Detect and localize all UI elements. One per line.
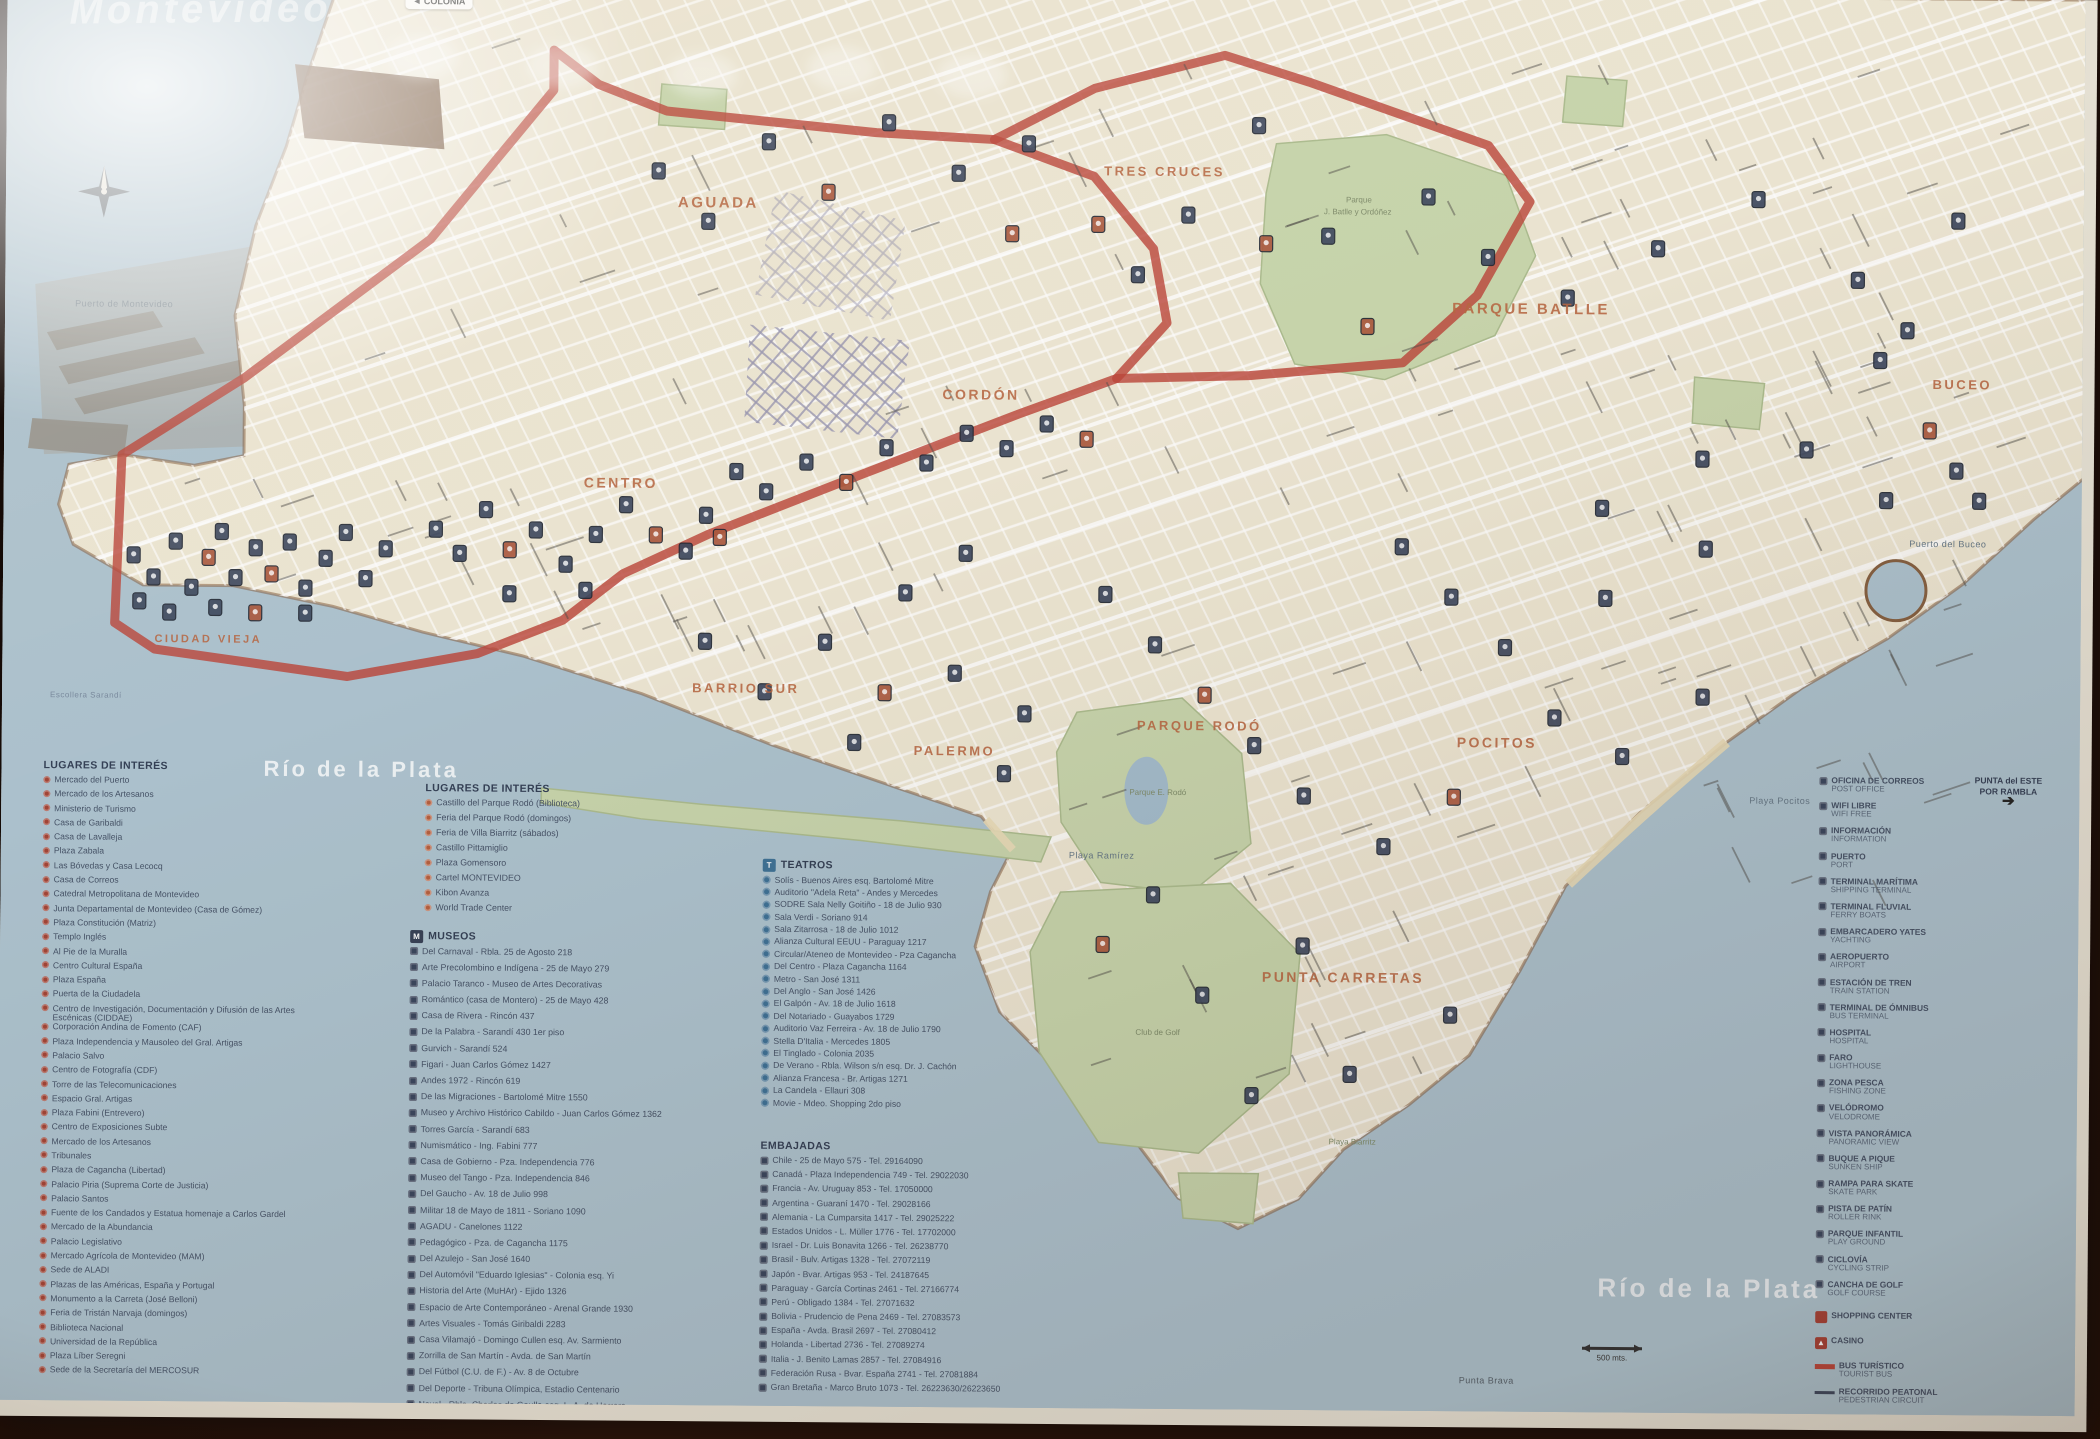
poi-marker <box>822 184 835 200</box>
legend-bullet-icon <box>1818 903 1826 911</box>
poi-marker <box>147 569 160 585</box>
poi-marker-glyph <box>1026 140 1031 145</box>
legend-bullet-icon <box>1817 1129 1825 1137</box>
legend-bullet-icon <box>762 975 770 983</box>
service-item: VELÓDROMOVELODROME <box>1817 1103 2037 1130</box>
poi-marker-glyph <box>363 575 368 580</box>
poi-marker <box>265 566 278 582</box>
theaters-icon: T <box>763 858 776 871</box>
poi-marker-glyph <box>343 529 348 534</box>
poi-marker <box>283 534 296 550</box>
poi-marker-glyph <box>303 610 308 615</box>
poi-marker-glyph <box>323 555 328 560</box>
poi-marker <box>1950 463 1963 479</box>
legend-title: EMBAJADAS <box>761 1140 1091 1155</box>
poi-marker <box>453 545 466 561</box>
poi-marker <box>1901 323 1914 339</box>
theater-item: Movie - Mdeo. Shopping 2do piso <box>761 1098 1091 1113</box>
poi-marker-glyph <box>1426 193 1431 198</box>
legend-bullet-icon <box>42 890 49 897</box>
poi-marker-glyph <box>563 561 568 566</box>
poi-marker-glyph <box>656 167 661 172</box>
poi-marker-glyph <box>1700 694 1705 699</box>
poi-marker-glyph <box>1977 498 1982 503</box>
legend-bullet-icon <box>759 1341 767 1349</box>
poi-marker-glyph <box>1905 327 1910 332</box>
legend-bullet-icon <box>42 990 49 997</box>
poi-marker-glyph <box>844 479 849 484</box>
service-item: CANCHA DE GOLFGOLF COURSE <box>1815 1280 2035 1307</box>
poi-marker <box>299 580 312 596</box>
legend-bullet-icon <box>760 1213 768 1221</box>
park-label: Playa Biarritz <box>1329 1137 1376 1146</box>
legend-bullet-icon <box>425 844 432 851</box>
legend-title: LUGARES DE INTERÉS <box>43 759 335 773</box>
poi-marker <box>1447 789 1460 805</box>
legend-bullet-icon <box>406 1400 414 1408</box>
poi-marker <box>163 604 176 620</box>
poi-marker-glyph <box>1603 595 1608 600</box>
poi-marker-glyph <box>826 189 831 194</box>
water-label: Puerto del Buceo <box>1909 539 1986 550</box>
legend-bullet-icon <box>39 1295 46 1302</box>
poi-marker-glyph <box>1381 843 1386 848</box>
legend-bullet-icon <box>1818 1003 1826 1011</box>
poi-marker-glyph <box>884 444 889 449</box>
legend-bullet-icon <box>1819 827 1827 835</box>
legend-bullet-icon <box>40 1223 47 1230</box>
legend-bullet-icon <box>1819 802 1827 810</box>
legend-bullet-icon <box>39 1323 46 1330</box>
poi-marker <box>1851 272 1864 288</box>
poi-marker-glyph <box>1399 543 1404 548</box>
poi-marker-glyph <box>167 608 172 613</box>
map-paper: 500 mts. AGUADATRES CRUCESPARQUE BATLLEC… <box>0 0 2098 1432</box>
legend-bullet-icon <box>425 799 432 806</box>
legend-bullet-icon <box>43 847 50 854</box>
legend-bullet-icon <box>43 819 50 826</box>
poi-marker-glyph <box>1956 218 1961 223</box>
poi-marker <box>1196 987 1209 1003</box>
poi-marker-glyph <box>253 544 258 549</box>
poi-marker <box>127 547 140 563</box>
service-item: INFORMACIÓNINFORMATION <box>1819 826 2039 853</box>
legend-bullet-icon <box>762 913 770 921</box>
poi-marker-glyph <box>1447 1012 1452 1017</box>
legend-bullet-icon <box>40 1152 47 1159</box>
poi-marker-glyph <box>303 585 308 590</box>
legend-bullet-icon <box>1817 1079 1825 1087</box>
poi-marker <box>1699 541 1712 557</box>
legend-bullet-icon <box>1818 953 1826 961</box>
service-item: CICLOVÍACYCLING STRIP <box>1816 1255 2036 1282</box>
poi-marker-glyph <box>1485 254 1490 259</box>
poi-marker <box>1146 887 1159 903</box>
legend-bullet-icon <box>1817 1054 1825 1062</box>
legend-theaters: T TEATROS Solís - Buenos Aires esq. Bart… <box>761 858 1093 1114</box>
poi-marker <box>1148 637 1161 653</box>
legend-places-1: LUGARES DE INTERÉS Mercado del PuertoMer… <box>39 759 336 1382</box>
poi-marker <box>959 545 972 561</box>
legend-bullet-icon <box>41 1109 48 1116</box>
service-special-item: BUS TURÍSTICOTOURIST BUS <box>1815 1361 2035 1388</box>
poi-marker-glyph <box>533 526 538 531</box>
poi-marker <box>1092 216 1105 232</box>
poi-marker <box>1361 318 1374 334</box>
embassy-item: Gran Bretaña - Marco Bruto 1073 - Tel. 2… <box>759 1383 1089 1400</box>
poi-marker <box>1080 431 1093 447</box>
water-label: Escollera Sarandí <box>50 690 122 700</box>
legend-bullet-icon <box>425 889 432 896</box>
legend-bullet-icon <box>761 1062 769 1070</box>
district-label: POCITOS <box>1457 734 1537 751</box>
legend-bullet-icon <box>1819 852 1827 860</box>
map-photo: { "map": { "watermark": "Montevideo", "c… <box>0 0 2100 1439</box>
poi-marker-glyph <box>1010 230 1015 235</box>
poi-marker <box>840 474 853 490</box>
poi-marker-glyph <box>717 534 722 539</box>
poi-marker <box>699 507 712 523</box>
legend-bullet-icon <box>410 996 418 1004</box>
poi-marker-glyph <box>702 638 707 643</box>
legend-bullet-icon <box>409 1060 417 1068</box>
logo-glare <box>937 53 1007 98</box>
poi-marker <box>899 585 912 601</box>
poi-marker-glyph <box>131 551 136 556</box>
legend-places-2: LUGARES DE INTERÉS Castillo del Parque R… <box>424 782 725 920</box>
legend-bullet-icon <box>761 1086 769 1094</box>
district-label: AGUADA <box>678 194 759 212</box>
legend-bullet-icon <box>1817 1104 1825 1112</box>
service-item: RAMPA PARA SKATESKATE PARK <box>1816 1179 2036 1206</box>
poi-marker-glyph <box>1152 641 1157 646</box>
poi-marker-glyph <box>206 554 211 559</box>
park-label: Parque <box>1346 195 1372 204</box>
poi-marker-glyph <box>1301 792 1306 797</box>
poi-marker <box>1874 352 1887 368</box>
poi-marker <box>529 522 542 538</box>
poi-marker-glyph <box>1186 211 1191 216</box>
legend-bullet-icon <box>409 1093 417 1101</box>
poi-marker-glyph <box>1954 468 1959 473</box>
poi-marker <box>299 605 312 621</box>
service-item: BUQUE A PIQUESUNKEN SHIP <box>1816 1154 2036 1181</box>
legend-bullet-icon <box>40 1180 47 1187</box>
legend-bullet-icon <box>409 1109 417 1117</box>
poi-marker <box>1131 267 1144 283</box>
poi-marker-glyph <box>924 459 929 464</box>
poi-marker <box>762 134 775 150</box>
legend-bullet-icon <box>762 1000 770 1008</box>
poi-marker <box>1182 207 1195 223</box>
legend-bullet-icon <box>761 1037 769 1045</box>
poi-marker-glyph <box>1855 277 1860 282</box>
poi-marker <box>1498 640 1511 656</box>
poi-marker-glyph <box>593 531 598 536</box>
legend-museums: M MUSEOS Del Carnaval - Rbla. 25 de Agos… <box>406 929 728 1416</box>
poi-marker-glyph <box>764 488 769 493</box>
poi-marker-glyph <box>1200 992 1205 997</box>
legend-bullet-icon <box>41 1023 48 1030</box>
poi-marker <box>1343 1066 1356 1082</box>
legend-bullet-icon <box>1816 1255 1824 1263</box>
poi-marker-glyph <box>886 119 891 124</box>
poi-marker-glyph <box>1927 427 1932 432</box>
service-item: WIFI LIBREWIFI FREE <box>1819 801 2039 828</box>
poi-marker <box>319 550 332 566</box>
legend-bullet-icon <box>407 1319 415 1327</box>
poi-marker-glyph <box>1656 245 1661 250</box>
poi-marker <box>920 455 933 471</box>
poi-marker-glyph <box>903 589 908 594</box>
poi-marker <box>620 497 633 513</box>
service-item: VISTA PANORÁMICAPANORAMIC VIEW <box>1817 1129 2037 1156</box>
logo-glare <box>387 35 457 80</box>
legend-bullet-icon <box>760 1156 768 1164</box>
poi-marker-glyph <box>703 512 708 517</box>
logo-glare <box>807 46 877 91</box>
poi-marker <box>1923 423 1936 439</box>
legend-bullet-icon <box>762 963 770 971</box>
poi-marker <box>1198 687 1211 703</box>
legend-bullet-icon <box>43 876 50 883</box>
poi-marker <box>948 665 961 681</box>
poi-marker <box>652 163 665 179</box>
legend-bullet-icon <box>1816 1205 1824 1213</box>
poi-marker <box>1696 689 1709 705</box>
poi-marker-glyph <box>137 597 142 602</box>
poi-marker-glyph <box>1703 546 1708 551</box>
legend-bullet-icon <box>760 1170 768 1178</box>
district-label: TRES CRUCES <box>1104 163 1225 179</box>
legend-bullet-icon <box>759 1383 767 1391</box>
service-special-item: RECORRIDO PEATONALPEDESTRIAN CIRCUIT <box>1814 1387 2034 1414</box>
poi-marker-glyph <box>151 573 156 578</box>
poi-marker-glyph <box>734 468 739 473</box>
legend-bullet-icon <box>41 1123 48 1130</box>
poi-marker-glyph <box>189 584 194 589</box>
poi-marker <box>1445 589 1458 605</box>
poi-marker <box>1000 441 1013 457</box>
poi-marker <box>698 633 711 649</box>
poi-marker-glyph <box>583 587 588 592</box>
legend-bullet-icon <box>1815 1364 1835 1369</box>
legend-bullet-icon <box>759 1369 767 1377</box>
legend-bullet-icon <box>1816 1180 1824 1188</box>
poi-marker <box>1481 249 1494 265</box>
poi-marker-glyph <box>383 545 388 550</box>
poi-marker <box>1752 192 1765 208</box>
legend-bullet-icon <box>759 1355 767 1363</box>
poi-marker-glyph <box>1249 1092 1254 1097</box>
poi-marker-glyph <box>1004 445 1009 450</box>
legend-bullet-icon <box>1818 978 1826 986</box>
poi-marker-glyph <box>1135 271 1140 276</box>
poi-marker-glyph <box>1084 436 1089 441</box>
poi-marker <box>1018 706 1031 722</box>
poi-marker-glyph <box>1347 1071 1352 1076</box>
poi-marker <box>559 556 572 572</box>
water-label: Río de la Plata <box>1597 1272 1820 1304</box>
poi-marker-glyph <box>483 506 488 511</box>
legend-bullet-icon <box>43 833 50 840</box>
poi-marker-glyph <box>963 550 968 555</box>
poi-marker <box>479 502 492 518</box>
legend-bullet-icon <box>762 950 770 958</box>
logo-glare <box>667 53 737 98</box>
legend-bullet-icon <box>1817 1028 1825 1036</box>
poi-marker <box>679 543 692 559</box>
poi-marker <box>952 165 965 181</box>
legend-bullet-icon <box>39 1309 46 1316</box>
poi-marker-glyph <box>1096 221 1101 226</box>
legend-bullet-icon <box>1815 1391 1835 1394</box>
legend-bullet-icon <box>762 938 770 946</box>
poi-marker <box>1652 241 1665 257</box>
park-label: Club de Golf <box>1135 1028 1180 1037</box>
poi-marker <box>1800 442 1813 458</box>
poi-marker <box>379 541 392 557</box>
poi-marker-glyph <box>882 689 887 694</box>
legend-bullet-icon <box>763 876 771 884</box>
poi-marker <box>1444 1007 1457 1023</box>
poi-marker-glyph <box>1252 742 1257 747</box>
colonia-sign: ◄ COLONIA <box>405 0 472 9</box>
poi-marker-glyph <box>683 548 688 553</box>
park-label: Parque E. Rodó <box>1129 788 1187 797</box>
legend-bullet-icon <box>43 804 50 811</box>
poi-marker <box>133 593 146 609</box>
district-label: CIUDAD VIEJA <box>154 633 262 646</box>
poi-marker <box>1599 590 1612 606</box>
buceo-harbor <box>1866 560 1926 620</box>
poi-marker <box>1395 539 1408 555</box>
legend-bullet-icon <box>761 1049 769 1057</box>
legend-services: OFICINA DE CORREOSPOST OFFICEWIFI LIBREW… <box>1814 776 2039 1416</box>
legend-bullet-icon <box>1816 1154 1824 1162</box>
legend-bullet-icon <box>41 1066 48 1073</box>
district-label: PUNTA CARRETAS <box>1262 969 1424 986</box>
poi-marker <box>359 571 372 587</box>
poi-marker <box>579 582 592 598</box>
legend-bullet-icon <box>408 1174 416 1182</box>
poi-marker-glyph <box>1365 323 1370 328</box>
legend-bullet-icon <box>39 1337 46 1344</box>
poi-marker <box>702 213 715 229</box>
legend-bullet-icon <box>40 1237 47 1244</box>
poi-marker <box>1296 938 1309 954</box>
legend-bullet-icon <box>41 1080 48 1087</box>
legend-bullet-icon <box>407 1384 415 1392</box>
legend-bullet-icon <box>425 829 432 836</box>
legend-bullet-icon <box>407 1352 415 1360</box>
legend-bullet-icon <box>39 1366 46 1373</box>
poi-marker-glyph <box>1202 692 1207 697</box>
legend-title: T TEATROS <box>763 858 1093 874</box>
poi-marker <box>880 440 893 456</box>
poi-marker-glyph <box>1756 196 1761 201</box>
service-item: EMBARCADERO YATESYACHTING <box>1818 927 2038 954</box>
poi-marker-glyph <box>1022 710 1027 715</box>
poi-marker-glyph <box>1300 942 1305 947</box>
legend-bullet-icon <box>762 901 770 909</box>
legend-bullet-icon <box>408 1238 416 1246</box>
poi-marker-glyph <box>653 531 658 536</box>
legend-bullet-icon <box>410 947 418 955</box>
poi-marker-glyph <box>1100 941 1105 946</box>
poi-marker-glyph <box>1700 456 1705 461</box>
poi-marker <box>169 533 182 549</box>
district-label: BARRIO SUR <box>692 680 799 696</box>
legend-bullet-icon <box>759 1312 767 1320</box>
poi-marker <box>429 521 442 537</box>
map-canvas: 500 mts. AGUADATRES CRUCESPARQUE BATLLEC… <box>0 0 2086 1416</box>
poi-marker <box>997 766 1010 782</box>
poi-marker <box>1880 493 1893 509</box>
poi-marker <box>1099 586 1112 602</box>
poi-marker <box>1696 451 1709 467</box>
legend-bullet-icon <box>1816 1230 1824 1238</box>
poi-marker <box>249 540 262 556</box>
museums-icon: M <box>410 930 423 943</box>
district-label: BUCEO <box>1933 377 1993 392</box>
legend-bullet-icon <box>41 1094 48 1101</box>
poi-marker <box>215 523 228 539</box>
legend-bullet-icon: ▲ <box>1815 1337 1827 1349</box>
poi-marker <box>1596 500 1609 516</box>
poi-marker-glyph <box>507 590 512 595</box>
legend-title: M MUSEOS <box>410 929 728 945</box>
poi-marker-glyph <box>956 170 961 175</box>
poi-marker-glyph <box>1264 240 1269 245</box>
legend-title: LUGARES DE INTERÉS <box>425 782 725 796</box>
poi-marker <box>1548 710 1561 726</box>
water-label: Playa Pocitos <box>1749 796 1810 806</box>
legend-bullet-icon <box>42 1004 49 1011</box>
district-label: PARQUE RODÓ <box>1137 718 1262 734</box>
legend-bullet-icon <box>760 1199 768 1207</box>
legend-bullet-icon <box>408 1190 416 1198</box>
legend-bullet-icon <box>760 1241 768 1249</box>
legend-bullet-icon <box>762 925 770 933</box>
poi-marker-glyph <box>964 430 969 435</box>
poi-marker-glyph <box>1565 294 1570 299</box>
legend-bullet-icon <box>1819 877 1827 885</box>
poi-marker <box>1022 136 1035 152</box>
poi-marker-glyph <box>1552 714 1557 719</box>
legend-bullet-icon <box>760 1256 768 1264</box>
legend-bullet-icon <box>425 859 432 866</box>
poi-marker <box>339 524 352 540</box>
legend-bullet-icon <box>409 1028 417 1036</box>
poi-marker-glyph <box>287 538 292 543</box>
legend-bullet-icon <box>41 1137 48 1144</box>
poi-marker-glyph <box>1878 357 1883 362</box>
legend-bullet-icon <box>408 1255 416 1263</box>
legend-bullet-icon <box>407 1368 415 1376</box>
poi-marker-glyph <box>1804 446 1809 451</box>
place-item: Sede de la Secretaría del MERCOSUR <box>39 1366 331 1383</box>
legend-bullet-icon <box>761 1074 769 1082</box>
service-item: AEROPUERTOAIRPORT <box>1818 952 2038 979</box>
legend-bullet-icon <box>39 1280 46 1287</box>
legend-bullet-icon <box>40 1166 47 1173</box>
poi-marker-glyph <box>1256 122 1261 127</box>
legend-bullet-icon <box>760 1270 768 1278</box>
legend-bullet-icon <box>41 1052 48 1059</box>
legend-bullet-icon <box>407 1271 415 1279</box>
map-title-watermark: Montevideo <box>69 0 332 34</box>
